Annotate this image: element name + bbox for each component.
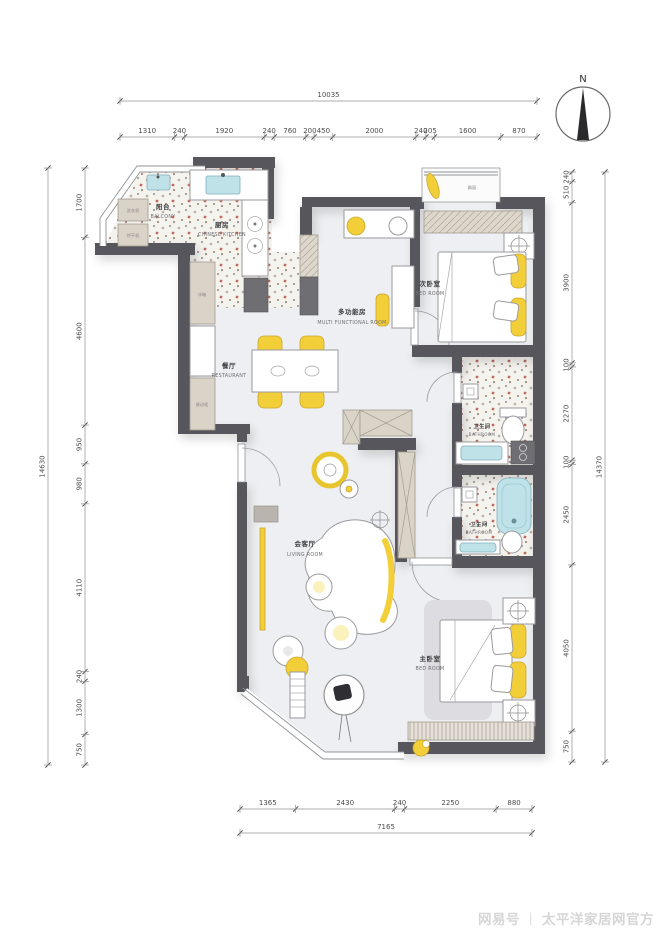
dim-label: 3900 xyxy=(563,274,571,292)
dim-label: 14370 xyxy=(596,456,604,478)
dim-label: 1365 xyxy=(259,799,277,807)
dim-label: 7165 xyxy=(377,823,395,831)
side-desk xyxy=(392,266,414,328)
dim-label: 205 xyxy=(423,127,436,135)
bathroom2-label-en: BATHROOM xyxy=(466,530,493,535)
entry-door xyxy=(238,444,245,482)
dim-label: 100 xyxy=(563,456,571,469)
dim-bottom-total: 7165 xyxy=(237,823,534,837)
basin xyxy=(460,543,496,552)
sideboard-label: 餐边柜 xyxy=(196,401,209,408)
stool xyxy=(347,217,365,235)
wardrobe-rail xyxy=(408,722,534,740)
restaurant-label-cn: 餐厅 xyxy=(221,361,236,370)
second-bedroom-label-en: BED ROOM xyxy=(416,291,445,297)
shower-drain xyxy=(463,384,478,399)
dim-label: 240 xyxy=(173,127,186,135)
second-bedroom-label-cn: 次卧室 xyxy=(420,279,441,288)
dim-label: 4050 xyxy=(563,639,571,657)
bathroom2-label-cn: 卫生间 xyxy=(470,520,487,528)
master-bedroom-furniture xyxy=(408,598,535,756)
bathroom1-label-cn: 卫生间 xyxy=(473,422,490,430)
dim-label: 750 xyxy=(563,740,571,753)
decor-dot xyxy=(346,486,352,492)
dim-label: 980 xyxy=(76,477,84,490)
dim-label: 1700 xyxy=(76,194,84,212)
compass-needle-icon xyxy=(577,88,589,140)
tv-shelf xyxy=(254,506,278,522)
dim-label: 880 xyxy=(507,799,520,807)
stool xyxy=(389,217,407,235)
dim-label: 950 xyxy=(76,438,84,451)
dim-right-total: 14370 xyxy=(596,169,610,764)
tv-console xyxy=(260,528,265,630)
compass: N xyxy=(556,74,610,141)
dim-label: 2430 xyxy=(336,799,354,807)
fridge xyxy=(244,278,268,312)
bathroom2-door xyxy=(454,488,461,517)
faucet-icon xyxy=(221,173,225,177)
master-bedroom-door xyxy=(410,558,452,565)
dim-top-total: 10035 xyxy=(117,91,539,105)
dim-label: 4110 xyxy=(76,579,84,597)
compass-north-label: N xyxy=(579,74,586,85)
dim-label: 2270 xyxy=(563,405,571,423)
bathroom1-door xyxy=(454,373,461,403)
dim-label: 240 xyxy=(393,799,406,807)
dim-label: 870 xyxy=(512,127,525,135)
cabinet xyxy=(190,326,215,376)
dining-table xyxy=(252,350,338,392)
toilet xyxy=(502,416,524,444)
media-cabinet xyxy=(300,277,318,315)
dim-label: 4600 xyxy=(76,322,84,340)
pillow xyxy=(491,627,514,655)
dim-label: 2450 xyxy=(563,506,571,524)
floor-plan-svg: 阳台 BALCONY 厨房 CHINESE KITCHEN 多功能房 MULTI… xyxy=(0,0,660,934)
bay-window-label: 飘窗 xyxy=(468,184,476,191)
stove-counter xyxy=(242,200,268,276)
fridge-label: 冰箱 xyxy=(198,291,206,298)
dim-label: 2000 xyxy=(365,127,383,135)
balcony-label-en: BALCONY xyxy=(151,214,176,220)
toilet xyxy=(502,531,522,553)
multi-room-label-en: MULTI FUNCTIONAL ROOM xyxy=(317,320,386,326)
kitchen-label-en: CHINESE KITCHEN xyxy=(198,232,246,238)
dim-label: 1600 xyxy=(459,127,477,135)
dim-label: 760 xyxy=(283,127,296,135)
dim-left-total: 14630 xyxy=(39,165,53,767)
dim-label: 1300 xyxy=(76,699,84,717)
dim-label: 750 xyxy=(76,743,84,756)
kitchen-sink xyxy=(206,176,240,194)
washer-label: 洗衣机 xyxy=(127,207,140,214)
dim-bottom-segments: 136524302402250880 xyxy=(237,799,534,813)
wardrobe xyxy=(424,211,522,233)
dim-label: 2250 xyxy=(441,799,459,807)
pillow xyxy=(493,300,519,321)
dim-label: 200 xyxy=(303,127,316,135)
restaurant-label-en: RESTAURANT xyxy=(212,373,247,379)
dim-label: 450 xyxy=(317,127,330,135)
dim-label: 10035 xyxy=(317,91,339,99)
pillow xyxy=(491,665,514,693)
shower-drain xyxy=(462,487,477,502)
watermark: 网易号丨太平洋家居网官方 xyxy=(478,908,654,928)
dryer-label: 烘干机 xyxy=(127,232,140,239)
dining-chair xyxy=(258,390,282,408)
master-bedroom-label-cn: 主卧室 xyxy=(420,654,441,663)
dim-right-segments: 2405103900100227010024504050750 xyxy=(563,169,577,764)
cabinet xyxy=(300,235,318,277)
floor-plan-page: 阳台 BALCONY 厨房 CHINESE KITCHEN 多功能房 MULTI… xyxy=(0,0,660,934)
master-bedroom-label-en: BED ROOM xyxy=(416,666,445,672)
multi-room-label-cn: 多功能房 xyxy=(338,307,366,316)
watermark-name: 太平洋家居网官方 xyxy=(542,912,654,928)
dim-label: 510 xyxy=(563,186,571,199)
dim-label: 1920 xyxy=(215,127,233,135)
dim-label: 240 xyxy=(563,170,571,183)
basin xyxy=(461,446,502,460)
living-room-label-en: LIVING ROOM xyxy=(287,552,323,558)
kitchen-label-cn: 厨房 xyxy=(215,220,229,229)
dim-label: 14630 xyxy=(39,455,47,477)
balcony-label-cn: 阳台 xyxy=(156,202,170,211)
dim-label: 1310 xyxy=(138,127,156,135)
bathroom1-label-en: BATHROOM xyxy=(469,432,496,437)
living-room-label-cn: 会客厅 xyxy=(295,539,316,548)
dim-top-segments: 1310240192024076020045020002402051600870 xyxy=(117,127,539,141)
watermark-separator: 丨 xyxy=(524,912,538,928)
dining-chair xyxy=(300,390,324,408)
dim-left-segments: 1700460095098041102401300750 xyxy=(76,165,90,767)
pillow xyxy=(493,254,519,275)
dim-label: 240 xyxy=(262,127,275,135)
watermark-brand: 网易号 xyxy=(478,912,520,928)
dim-label: 100 xyxy=(563,358,571,371)
dim-label: 240 xyxy=(76,670,84,683)
